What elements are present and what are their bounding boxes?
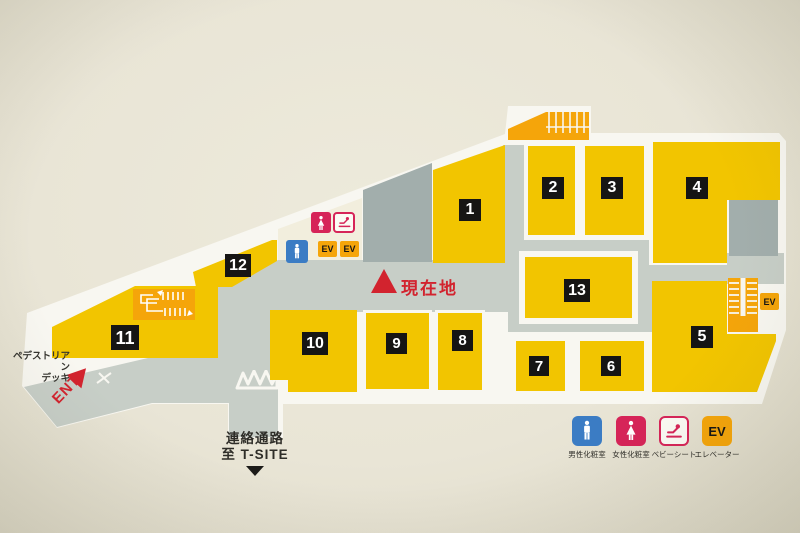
shop-badge-1: 1 xyxy=(459,199,481,221)
shop-badge-7: 7 xyxy=(529,356,549,376)
legend-label: ベビーシート xyxy=(650,449,698,460)
legend-label: 女性化粧室 xyxy=(607,449,655,460)
legend-elevator: EV エレベーター xyxy=(693,416,741,460)
elevator-right-icon: EV xyxy=(760,293,779,310)
shop-badge-4: 4 xyxy=(686,177,708,199)
legend-label: 男性化粧室 xyxy=(563,449,611,460)
shop-badge-13: 13 xyxy=(564,279,590,302)
pedestrian-deck-label: ペデストリアン デッキ xyxy=(6,352,70,385)
floor-map-sign: EV EV EV xyxy=(0,0,800,533)
shop-badge-10: 10 xyxy=(302,332,328,355)
stairs-top-hatch-icon xyxy=(545,111,591,141)
legend-female-restroom: 女性化粧室 xyxy=(607,416,655,460)
shop-badge-12: 12 xyxy=(225,254,251,277)
shop-badge-8: 8 xyxy=(452,330,473,351)
shop-badge-9: 9 xyxy=(386,333,407,354)
male-restroom-icon xyxy=(572,416,602,446)
legend-label: エレベーター xyxy=(693,449,741,460)
male-restroom-icon xyxy=(286,240,308,263)
escalator-icon xyxy=(133,289,195,320)
service-area-right xyxy=(729,200,778,256)
elevator-icon: EV xyxy=(702,416,732,446)
female-restroom-icon xyxy=(311,212,331,233)
passage-label: 連絡通路 至 T-SITE xyxy=(213,431,297,476)
elevator-1-icon: EV xyxy=(318,241,337,257)
baby-seat-icon xyxy=(333,212,355,233)
legend-baby-seat: ベビーシート xyxy=(650,416,698,460)
shop-badge-5: 5 xyxy=(691,326,713,348)
shop-badge-6: 6 xyxy=(601,356,621,376)
elevator-2-icon: EV xyxy=(340,241,359,257)
entrance-cross-mark-icon xyxy=(96,371,112,385)
baby-seat-icon xyxy=(659,416,689,446)
shop-badge-2: 2 xyxy=(542,177,564,199)
current-location-marker xyxy=(371,269,397,293)
stairs-right-icon xyxy=(728,278,758,332)
passage-arrow-icon xyxy=(246,466,264,476)
current-location-label: 現在地 xyxy=(401,274,458,299)
shop-badge-3: 3 xyxy=(601,177,623,199)
shop-area-8 xyxy=(435,310,485,393)
shop-badge-11: 11 xyxy=(111,325,139,350)
female-restroom-icon xyxy=(616,416,646,446)
legend-male-restroom: 男性化粧室 xyxy=(563,416,611,460)
